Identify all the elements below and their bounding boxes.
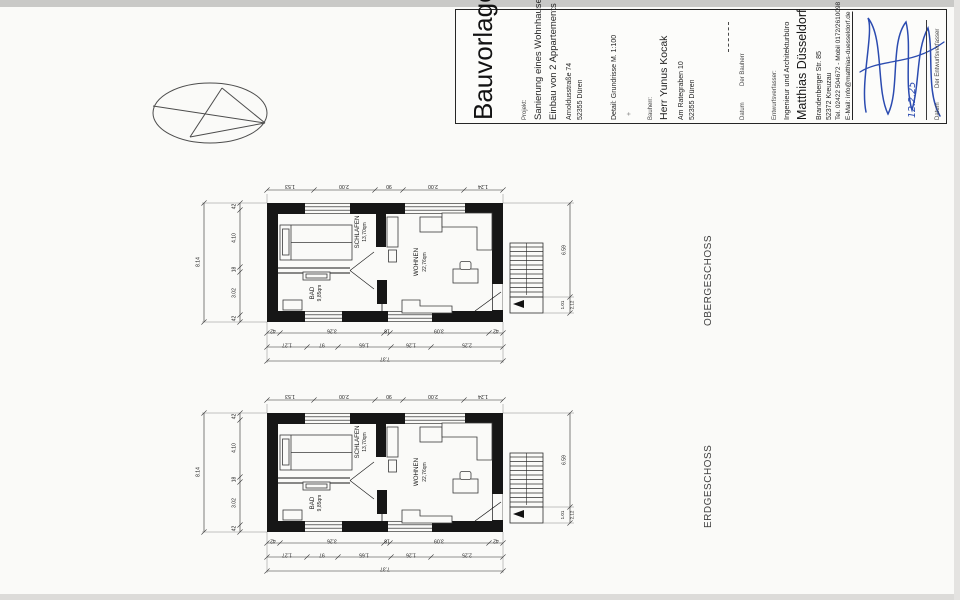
scan-paper: Bauvorlagen Projekt: Sanierung eines Woh… — [0, 0, 960, 600]
dim-label: 3.02 — [232, 498, 238, 508]
signature-icon — [854, 12, 946, 120]
dim-label: 6.59 — [562, 245, 568, 255]
dim-label: 1.27 — [282, 342, 292, 348]
dim-label: 2.00 — [428, 393, 438, 399]
floorplan-obergeschoss: SCHLAFEN 13,70qm WOHNEN 22,76qm BAD 9,85… — [190, 172, 590, 372]
dim-label: 2.00 — [339, 183, 349, 189]
stairs — [510, 453, 543, 523]
room-area-schlafen: 13,70qm — [362, 222, 368, 241]
dim-label: 18 — [384, 538, 390, 544]
dim-label: 42 — [493, 538, 499, 544]
dim-label: 90 — [386, 393, 392, 399]
designer-office: Ingenieur und Architekturbüro — [783, 24, 791, 120]
dim-label: 1.24 — [478, 393, 488, 399]
dim-label: 42 — [232, 414, 238, 420]
room-label-wohnen: WOHNEN — [413, 458, 420, 486]
room-label-schlafen: SCHLAFEN — [354, 215, 361, 248]
north-arrow-icon — [148, 80, 273, 146]
signature-date-handwritten: 12.2.25 — [908, 74, 918, 118]
client-city: 52355 Düren — [689, 24, 696, 120]
dim-label: 4.10 — [232, 443, 238, 453]
designer-city: 52372 Kreuzau — [826, 24, 833, 120]
dim-label: 1.27 — [282, 552, 292, 558]
dim-label: 7.37 — [380, 566, 390, 572]
client-sign-who: Der Bauherr — [740, 22, 746, 86]
dim-label: 2.12 — [570, 510, 575, 519]
dim-label: 3.09 — [434, 328, 444, 334]
dim-label: 42 — [232, 526, 238, 532]
designer-tel: Tel. 02422 504672 - Mobil 0172/2610098 — [836, 24, 843, 120]
dim-label: 1.53 — [285, 183, 295, 189]
designer-sign-datum: Datum — [935, 94, 941, 120]
client-signature-line — [728, 22, 729, 52]
dim-label: 3.09 — [434, 538, 444, 544]
room-area-bad: 9,85qm — [317, 285, 323, 302]
dim-label: 4.10 — [232, 233, 238, 243]
designer-signature-line — [926, 20, 927, 120]
project-street: Arnoldusstraße 74 — [566, 24, 573, 120]
dim-label: 18 — [384, 328, 390, 334]
client-street: Am Rategraben 10 — [678, 24, 685, 120]
designer-label: Entwurfsverfasser: — [772, 24, 778, 120]
dim-label: 2.25 — [462, 552, 472, 558]
plan-title-obergeschoss: OBERGESCHOSS — [704, 250, 715, 326]
dim-label: 18 — [232, 477, 238, 483]
dim-label: 1.65 — [359, 552, 369, 558]
project-city: 52355 Düren — [577, 24, 584, 120]
dim-label: 1.65 — [359, 342, 369, 348]
dim-label: 7.37 — [380, 356, 390, 362]
client-name: Herr Yunus Kocak — [659, 24, 670, 120]
project-label: Projekt: — [522, 24, 528, 120]
dim-label: 42 — [232, 316, 238, 322]
dim-label: 42 — [270, 328, 276, 334]
dim-label: 97 — [319, 552, 325, 558]
stair-direction-arrow — [513, 510, 524, 518]
dim-label: 8.14 — [196, 257, 202, 267]
room-area-schlafen: 13,70qm — [362, 432, 368, 451]
dim-label: 1.26 — [406, 552, 416, 558]
room-area-wohnen: 22,76qm — [422, 252, 428, 271]
dim-label: 3.02 — [232, 288, 238, 298]
designer-name: Matthias Düsseldorf — [796, 24, 809, 120]
dim-label: 1.01 — [560, 300, 565, 309]
dim-label: 3.26 — [327, 328, 337, 334]
dim-label: 42 — [232, 204, 238, 210]
room-label-schlafen: SCHLAFEN — [354, 425, 361, 458]
dim-label: 2.12 — [570, 300, 575, 309]
dim-label: 1.01 — [560, 510, 565, 519]
stair-direction-arrow — [513, 300, 524, 308]
dim-label: 1.24 — [478, 183, 488, 189]
dim-label: 90 — [386, 183, 392, 189]
project-line2: Einbau von 2 Appartements — [549, 24, 559, 120]
designer-street: Brandenberger Str. 85 — [816, 24, 823, 120]
dim-label: 6.59 — [562, 455, 568, 465]
dim-label: 8.14 — [196, 467, 202, 477]
project-line1: Sanierung eines Wohnhauses — [534, 24, 544, 120]
dim-label: 1.26 — [406, 342, 416, 348]
designer-email: E-Mail: info@matthias-duesseldorf.de — [846, 24, 853, 120]
detail-line: Detail: Grundrisse M. 1:100 — [611, 24, 618, 120]
title-block: Bauvorlagen Projekt: Sanierung eines Woh… — [455, 9, 947, 124]
floorplan-erdgeschoss: SCHLAFEN 13,70qm WOHNEN 22,76qm BAD 9,85… — [190, 382, 590, 582]
dim-label: 97 — [319, 342, 325, 348]
plus-mark: + — [626, 76, 633, 116]
plan-title-erdgeschoss: ERDGESCHOSS — [704, 452, 715, 528]
doc-title: Bauvorlagen — [470, 20, 497, 120]
room-label-wohnen: WOHNEN — [413, 248, 420, 276]
dim-label: 2.25 — [462, 342, 472, 348]
room-area-bad: 9,85qm — [317, 495, 323, 512]
dim-label: 42 — [493, 328, 499, 334]
dim-label: 1.53 — [285, 393, 295, 399]
dim-label: 18 — [232, 267, 238, 273]
scan-bottom-edge — [0, 594, 960, 600]
room-area-wohnen: 22,76qm — [422, 462, 428, 481]
room-label-bad: BAD — [309, 496, 316, 509]
client-sign-datum: Datum — [740, 92, 746, 120]
room-label-bad: BAD — [309, 286, 316, 299]
stairs — [510, 243, 543, 313]
designer-sign-who: Der Entwurfsverfasser — [935, 18, 941, 88]
client-label: Bauherr: — [648, 24, 654, 120]
dim-label: 2.00 — [339, 393, 349, 399]
scan-right-edge — [954, 0, 960, 600]
dim-label: 42 — [270, 538, 276, 544]
dim-label: 3.26 — [327, 538, 337, 544]
dim-label: 2.00 — [428, 183, 438, 189]
